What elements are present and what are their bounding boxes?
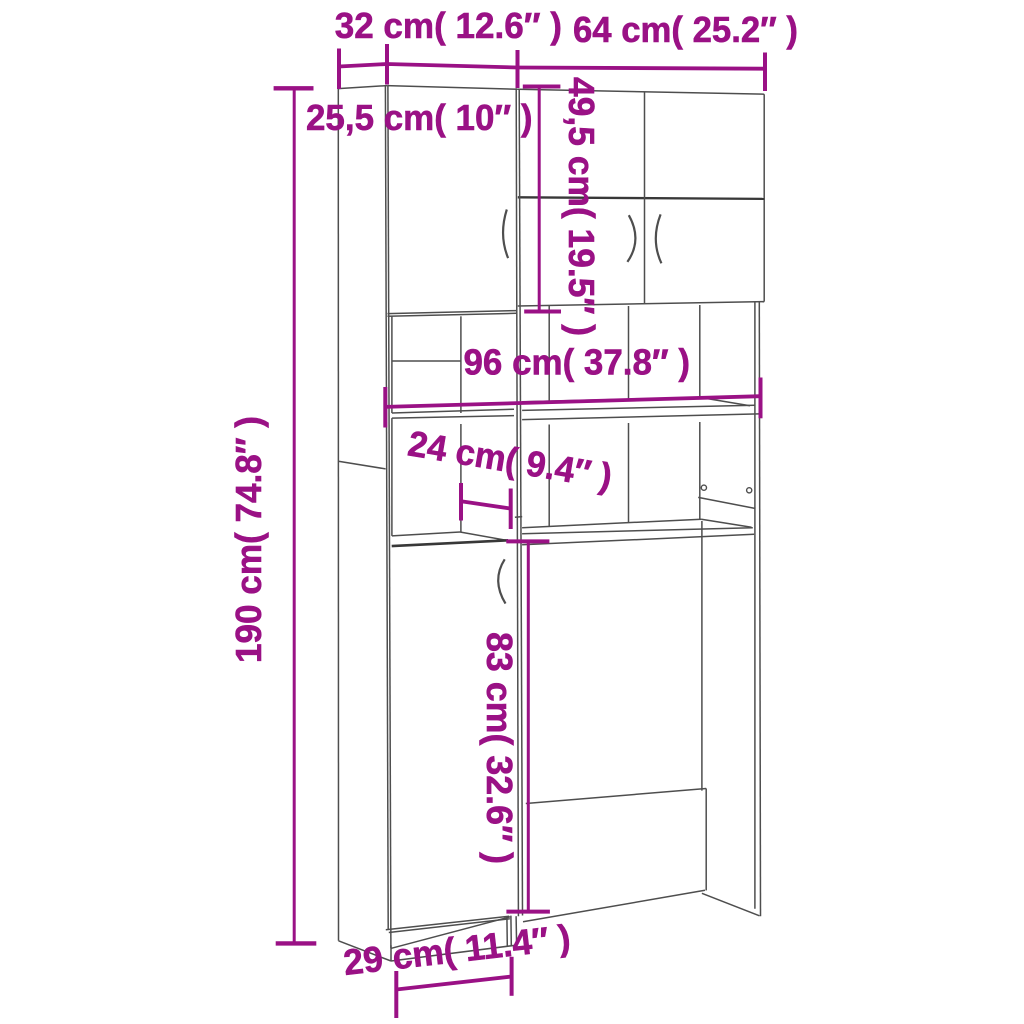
svg-text:190 cm( 74.8″ ): 190 cm( 74.8″ ) bbox=[228, 416, 269, 663]
svg-text:24 cm( 9.4″ ): 24 cm( 9.4″ ) bbox=[405, 422, 615, 496]
svg-text:96 cm( 37.8″ ): 96 cm( 37.8″ ) bbox=[464, 342, 691, 383]
svg-text:25,5 cm( 10″ ): 25,5 cm( 10″ ) bbox=[306, 97, 533, 138]
svg-text:49,5 cm( 19.5″ ): 49,5 cm( 19.5″ ) bbox=[561, 77, 602, 336]
svg-text:83 cm( 32.6″ ): 83 cm( 32.6″ ) bbox=[479, 632, 520, 864]
svg-text:64 cm( 25.2″ ): 64 cm( 25.2″ ) bbox=[573, 9, 798, 50]
svg-text:32 cm( 12.6″ ): 32 cm( 12.6″ ) bbox=[335, 5, 562, 46]
svg-text:29 cm( 11.4″ ): 29 cm( 11.4″ ) bbox=[341, 916, 572, 983]
